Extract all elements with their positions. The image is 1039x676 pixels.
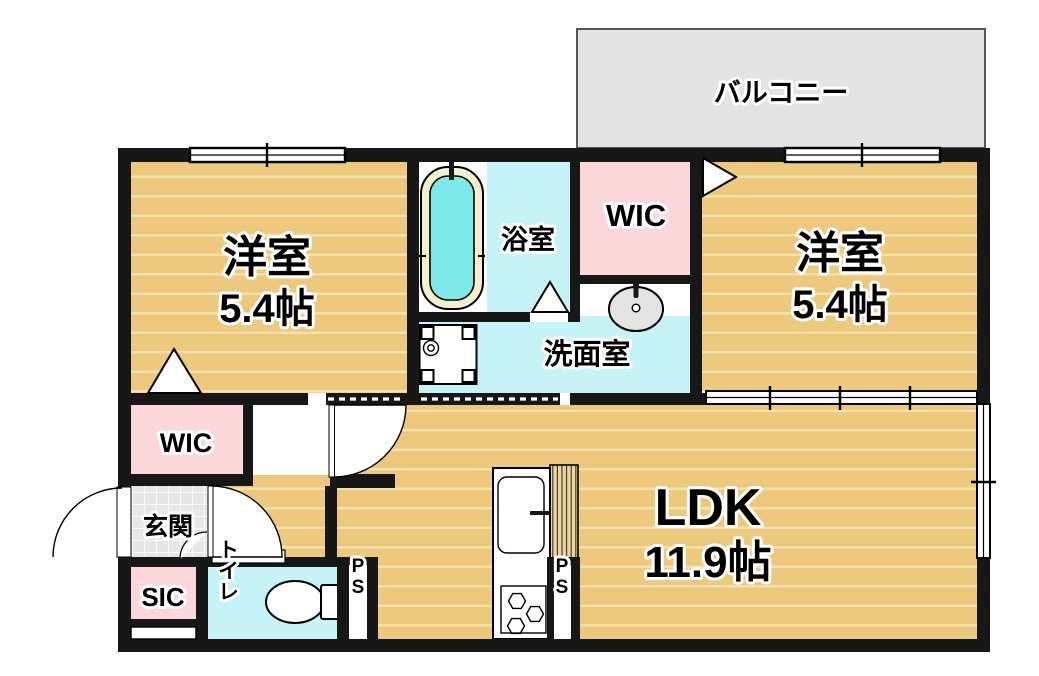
bathtub-water xyxy=(430,176,474,300)
wall-bath-joint xyxy=(568,312,580,322)
wall-right-upper xyxy=(977,148,990,404)
wall-washroom-south-b xyxy=(570,393,706,405)
toilet-fixture xyxy=(266,581,344,623)
kitchen-hatch-counter xyxy=(550,465,578,558)
wall-wictop-south xyxy=(570,275,702,284)
wall-hall-east xyxy=(325,486,337,567)
bathroom-label: 浴室 xyxy=(501,224,555,255)
wall-bedroomleft-south-a xyxy=(118,393,308,405)
washroom-label: 洗面室 xyxy=(543,337,630,371)
wall-sic-toilet xyxy=(196,567,208,639)
floor-plan-canvas: バルコニー 洋室 5.4帖 洋室 5.4帖 浴室 WIC 洗面室 WIC 玄関 … xyxy=(0,0,1039,676)
toilet-label: トイレ xyxy=(216,539,239,602)
wall-left-lower xyxy=(118,557,131,652)
bedroom-right-label: 洋室 xyxy=(796,228,884,278)
bedroom-left-label: 洋室 xyxy=(223,232,311,282)
washer-pan xyxy=(420,325,477,384)
wall-corridor-west xyxy=(243,405,253,486)
opening-bath-door xyxy=(530,312,568,322)
corridor-floor xyxy=(253,405,334,475)
bedroom-right-size: 5.4帖 xyxy=(792,283,888,327)
wall-washroom-east xyxy=(690,148,702,405)
ldk-size: 11.9帖 xyxy=(644,538,771,587)
opening-corridor xyxy=(308,393,326,405)
wall-sic-strip xyxy=(131,619,196,627)
sic-label: SIC xyxy=(141,582,185,612)
wall-bedroomleft-east xyxy=(407,148,419,405)
ldk-label: LDK xyxy=(655,479,762,537)
wall-bottom xyxy=(118,639,990,652)
opening-washroom xyxy=(560,393,570,405)
floor-plan: バルコニー 洋室 5.4帖 洋室 5.4帖 浴室 WIC 洗面室 WIC 玄関 … xyxy=(0,0,1039,676)
entrance-label: 玄関 xyxy=(143,512,193,541)
balcony-label: バルコニー xyxy=(714,78,848,108)
hall-door-panel xyxy=(208,486,213,557)
wall-bath-south xyxy=(407,312,530,322)
wall-bath-east xyxy=(570,148,580,312)
corridor-door-panel xyxy=(329,405,335,477)
front-door-swing-arc xyxy=(53,488,122,557)
wall-right-lower xyxy=(977,558,990,652)
bedroom-left-size: 5.4帖 xyxy=(219,287,315,331)
sic-shelf xyxy=(131,627,196,639)
wall-left-upper xyxy=(118,148,131,487)
kitchen-faucet xyxy=(530,511,550,515)
ps-toilet-label: PS xyxy=(348,556,369,598)
wall-wicleft-south xyxy=(118,474,253,486)
wic-top-label: WIC xyxy=(606,198,666,233)
ps-kitchen-label: PS xyxy=(552,556,573,598)
wic-left-label: WIC xyxy=(160,428,212,458)
front-door-jamb xyxy=(117,487,131,557)
